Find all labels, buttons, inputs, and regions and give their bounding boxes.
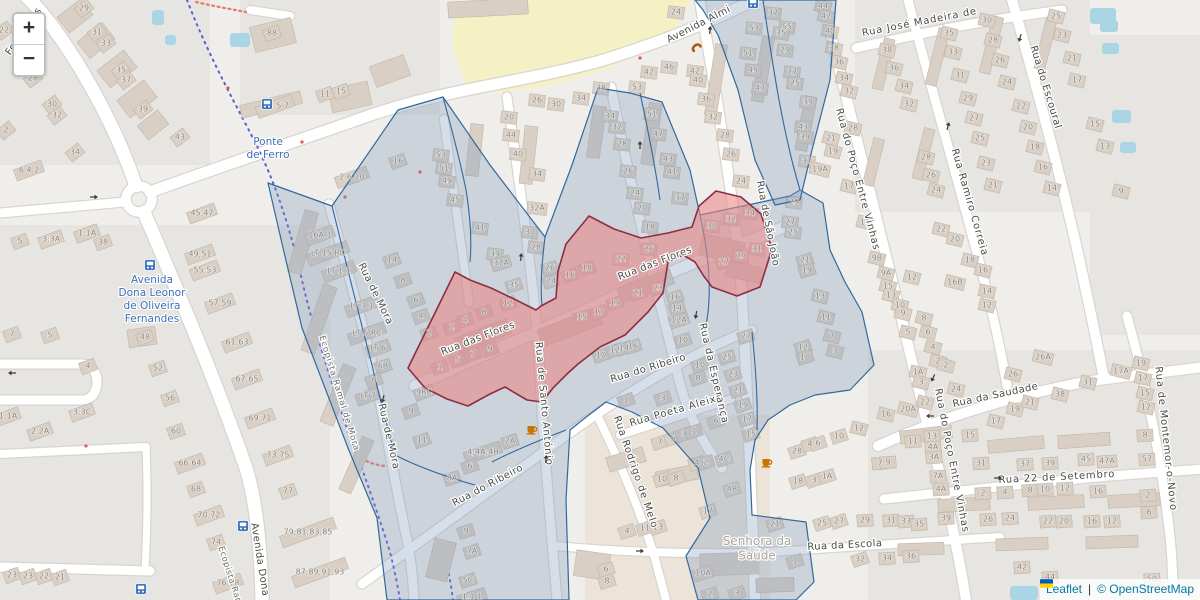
house-number: 15 — [336, 87, 346, 96]
place-label: Ponte — [253, 136, 283, 148]
house-number: 4C — [719, 455, 730, 464]
house-number: 11 — [821, 313, 831, 322]
house-number: 41 — [667, 168, 677, 177]
house-number: 38 — [98, 238, 108, 247]
house-number: 21 — [800, 256, 810, 265]
house-number: 37 — [1020, 460, 1030, 469]
house-number: 1;1 1 — [462, 593, 483, 600]
house-number: 34 — [605, 112, 615, 121]
house-number: 20 — [950, 235, 960, 244]
house-number: 18 — [582, 264, 592, 273]
house-number: 3 — [660, 394, 665, 403]
house-number: 39 — [138, 105, 148, 114]
house-number: 33 — [948, 48, 958, 57]
house-number: 32A — [529, 204, 545, 213]
building — [996, 537, 1048, 551]
house-number: 21 — [770, 520, 780, 529]
house-number: 6 — [467, 462, 472, 471]
house-number: 24 — [546, 277, 556, 286]
house-number: 1;1A — [78, 229, 97, 238]
house-number: 8 — [695, 374, 700, 383]
house-number: 2A — [505, 437, 516, 446]
house-number: 1A — [822, 472, 833, 481]
house-number: 88 — [267, 29, 277, 38]
house-number: 9 — [408, 407, 413, 416]
house-number: 37 — [675, 194, 685, 203]
house-number: 13 — [815, 292, 825, 301]
house-number: 12 — [1141, 403, 1151, 412]
house-number: 40 — [513, 150, 523, 159]
house-number: 38 — [1055, 390, 1065, 399]
house-number: 18 — [965, 256, 975, 265]
house-number: 16 — [1038, 163, 1048, 172]
house-number: 2 — [1145, 491, 1150, 500]
house-number: 39 — [803, 98, 813, 107]
house-number: 74 — [211, 538, 221, 547]
house-number: 34 — [745, 209, 755, 218]
house-number: 53 — [436, 151, 446, 160]
house-number: 48 — [140, 333, 150, 342]
house-number: 39 — [490, 250, 500, 259]
house-number: 23 — [981, 159, 991, 168]
house-number: 7A — [467, 547, 478, 556]
house-number: 25 — [790, 79, 800, 88]
house-number: 45 — [450, 196, 460, 205]
house-number: 1 — [792, 557, 797, 566]
house-number: 19 — [802, 266, 812, 275]
attribution-bar: Leaflet | © OpenStreetMap — [1040, 579, 1200, 600]
house-number: 35 — [776, 29, 786, 38]
house-number: 9B — [872, 254, 883, 263]
house-number: 3;3A — [42, 235, 61, 244]
house-number: 28 — [720, 131, 730, 140]
house-number: 35 — [944, 29, 954, 38]
house-number: 37 — [802, 157, 812, 166]
house-number: 2 6 10 — [339, 173, 364, 182]
house-number: 34 — [839, 74, 849, 83]
house-number: 2;2A — [31, 427, 50, 436]
house-number: 39 — [800, 133, 810, 142]
house-number: 45 — [1081, 455, 1091, 464]
house-number: 19 — [738, 401, 748, 410]
house-number: 31 — [1083, 378, 1093, 387]
house-number: 13 — [886, 291, 896, 300]
place-label: de Oliveira — [124, 300, 181, 312]
house-number: 4 — [1002, 488, 1007, 497]
house-number: 4A — [936, 485, 947, 494]
swimming-pool — [1010, 586, 1038, 600]
house-number: 6 — [371, 376, 376, 385]
house-number: 4 — [694, 459, 699, 468]
house-number: 25 — [975, 134, 985, 143]
house-number: 16 — [393, 157, 403, 166]
house-number: 21 — [1067, 54, 1077, 63]
house-number: 26 — [995, 56, 1005, 65]
house-number: 9 — [885, 458, 890, 467]
house-number: 11 — [320, 90, 330, 99]
house-number: 40 — [825, 27, 835, 36]
house-number: 32 — [904, 100, 914, 109]
house-number: 47A — [1099, 457, 1115, 466]
house-number: 6 — [413, 296, 418, 305]
house-number: 5C — [463, 576, 474, 585]
house-number: 12 — [1060, 484, 1070, 493]
house-number: 9A — [881, 269, 892, 278]
house-number: 3;3C — [73, 408, 92, 417]
house-number: 7 — [829, 332, 834, 341]
house-number: 16B — [947, 278, 963, 287]
house-number: 24 — [736, 177, 746, 186]
house-number: 19 — [1010, 405, 1020, 414]
house-number: 3 — [918, 378, 923, 387]
house-number: 35 — [509, 281, 519, 290]
house-number: 27 — [719, 258, 729, 267]
house-number: 32 — [726, 215, 736, 224]
house-number: 69;71 — [248, 414, 271, 423]
house-number: 29 — [963, 94, 973, 103]
house-number: 29 — [860, 516, 870, 525]
house-number: 17A — [1113, 367, 1129, 376]
house-number: 3 — [811, 476, 816, 485]
house-number: 10 — [678, 336, 688, 345]
house-number: 39 — [941, 514, 951, 523]
ukraine-flag-icon — [1040, 579, 1053, 588]
house-number: 27 — [787, 68, 797, 77]
house-number: 26 — [532, 96, 542, 105]
house-number: 42 — [644, 68, 654, 77]
house-number: 22 — [39, 572, 49, 581]
house-number: 66;64 — [178, 459, 201, 468]
house-number: 22 — [936, 225, 946, 234]
house-number: 1 — [691, 427, 696, 436]
house-number: 15 — [883, 282, 893, 291]
house-number: 19 — [828, 147, 838, 156]
house-number: 26 — [726, 150, 736, 159]
house-number: 6 — [925, 328, 930, 337]
swimming-pool — [1112, 110, 1131, 123]
house-number: 34 — [882, 554, 892, 563]
house-number: 15 — [1090, 120, 1100, 129]
house-number: 49;51 — [188, 250, 211, 259]
house-number: 7 — [9, 330, 14, 339]
house-number: 67;65 — [235, 375, 258, 384]
house-number: 24 — [1002, 78, 1012, 87]
house-number: 8 — [1142, 431, 1147, 440]
map-marker-dot — [84, 444, 87, 447]
house-number: 14 — [982, 287, 992, 296]
house-number: 53 — [632, 83, 642, 92]
house-number: 4A — [928, 443, 939, 452]
swimming-pool — [152, 10, 164, 25]
house-number: 20 — [637, 204, 647, 213]
house-number: 15 — [1140, 389, 1150, 398]
house-number: LT 1 1 — [327, 267, 351, 276]
house-number: 60 — [171, 427, 181, 436]
house-number: 57 — [1142, 455, 1152, 464]
house-number: 39 — [1045, 459, 1055, 468]
house-number: 68 — [191, 485, 201, 494]
house-number: 44 — [506, 131, 516, 140]
house-number: 42 — [690, 67, 700, 76]
house-number: 29 — [736, 252, 746, 261]
house-number: 4;4A;4B — [467, 448, 499, 457]
house-number: 12A — [671, 316, 687, 325]
house-number: 3 — [681, 430, 686, 439]
house-number: 22 — [0, 26, 9, 35]
house-number: 8 — [400, 276, 405, 285]
house-number: 24 — [1005, 514, 1015, 523]
place-label: Senhora da — [723, 534, 792, 548]
bus-stop-icon — [238, 521, 249, 532]
house-number: 28 — [921, 153, 931, 162]
house-number: 57;59 — [208, 299, 231, 308]
house-number: 47 — [755, 84, 765, 93]
house-number: 9RC — [416, 388, 432, 397]
house-number: 18 — [645, 223, 655, 232]
place-label: Fernandes — [125, 313, 179, 325]
house-number: 16 — [978, 266, 988, 275]
house-number: 24 — [951, 385, 961, 394]
house-number: 1 — [623, 396, 628, 405]
place-label: Dona Leonor — [119, 287, 187, 299]
house-number: 52 — [153, 364, 163, 373]
house-number: 5 — [455, 356, 460, 365]
house-number: 36 — [701, 95, 711, 104]
map-canvas[interactable]: 2229313335373943881 3 5 71115283032346 4… — [0, 0, 1200, 600]
house-number: 51 — [439, 164, 449, 173]
house-number: 26 — [644, 245, 654, 254]
house-number: 2 — [449, 323, 454, 332]
house-number: 42 — [821, 12, 831, 21]
house-number: 26 — [926, 171, 936, 180]
house-number: LT 15 RC — [311, 249, 346, 258]
house-number: 2 — [3, 126, 8, 135]
house-number: 26 — [1008, 370, 1018, 379]
house-number: 3 — [734, 589, 739, 598]
house-number: 35 — [116, 66, 126, 75]
house-number: 2 — [943, 361, 948, 370]
house-number: 22 — [616, 255, 626, 264]
house-number: 7A — [933, 472, 944, 481]
house-number: 23 — [23, 572, 33, 581]
house-number: 1 — [437, 363, 442, 372]
house-number: 2 — [426, 329, 431, 338]
house-number: LT 3 1 — [350, 302, 374, 311]
zoom-out-button[interactable]: − — [14, 45, 44, 75]
house-number: 38 — [882, 46, 892, 55]
house-number: 32 — [855, 555, 865, 564]
house-number: 32 — [708, 113, 718, 122]
house-number: 16 — [628, 342, 638, 351]
house-number: 20 — [1059, 517, 1069, 526]
house-number: 17 — [1138, 374, 1148, 383]
house-number: 10A — [695, 569, 711, 578]
house-number: 4 — [85, 362, 90, 371]
house-number: 15 — [577, 313, 587, 322]
house-number: 79;81;83;85 — [284, 528, 333, 537]
house-number: 51 — [647, 110, 657, 119]
house-number: 12 — [854, 424, 864, 433]
bus-stop-icon — [136, 584, 147, 595]
house-number: 21 — [733, 386, 743, 395]
house-number: 21 — [988, 181, 998, 190]
house-number: 28 — [617, 140, 627, 149]
house-number: 27 — [741, 332, 751, 341]
place-label: de Ferro — [246, 149, 289, 161]
house-number: 77 — [283, 487, 293, 496]
house-number: 6 — [815, 439, 820, 448]
house-number: 2 — [935, 357, 940, 366]
house-number: 43 — [798, 123, 808, 132]
swimming-pool — [230, 33, 250, 47]
house-number: 24 — [671, 8, 681, 17]
house-number: 44 — [818, 2, 828, 11]
house-number: 3 — [832, 347, 837, 356]
map-marker-dot — [300, 140, 303, 143]
house-number: 30 — [707, 222, 717, 231]
house-number: 32 — [612, 123, 622, 132]
house-number: 21 — [55, 573, 65, 582]
house-number: 31 — [886, 516, 896, 525]
bus-stop-icon — [262, 99, 273, 110]
house-number: 10 — [800, 353, 810, 362]
house-number: 10 — [695, 361, 705, 370]
house-number: 19A — [812, 165, 828, 174]
house-number: 4 — [462, 316, 467, 325]
house-number: 33 — [901, 517, 911, 526]
house-number: 34 — [532, 170, 542, 179]
swimming-pool — [1100, 20, 1118, 32]
bus-stop-icon — [145, 260, 156, 271]
house-number: 27 — [834, 517, 844, 526]
house-number: LT 6 — [370, 344, 386, 353]
house-number: 22 — [920, 398, 930, 407]
swimming-pool — [1102, 43, 1119, 54]
house-number: 9 — [463, 527, 468, 536]
house-number: 30 — [551, 100, 561, 109]
house-number: 36 — [834, 58, 844, 67]
house-number: 12 — [798, 343, 808, 352]
house-number: 17 — [1072, 76, 1082, 85]
house-number: 13 — [1100, 142, 1110, 151]
house-number: 8 — [921, 314, 926, 323]
house-number: 15 — [746, 430, 756, 439]
house-number: 23 — [1057, 31, 1067, 40]
house-number: 38 — [596, 84, 606, 93]
house-number: 14 — [672, 304, 682, 313]
house-number: 3A — [929, 453, 940, 462]
house-number: 18 — [1030, 143, 1040, 152]
house-number: 43 — [175, 133, 185, 142]
house-number: 36 — [906, 552, 916, 561]
house-number: 49 — [748, 66, 758, 75]
house-number: 7 — [470, 350, 475, 359]
house-number: 18 — [793, 477, 803, 486]
house-number: 23 — [728, 370, 738, 379]
house-number: 6 — [603, 565, 608, 574]
house-number: 26A — [1035, 353, 1051, 362]
house-number: 19 — [610, 299, 620, 308]
house-number: 10 — [834, 432, 844, 441]
house-number: 73;75 — [266, 451, 289, 460]
house-number: 8 — [481, 308, 486, 317]
map-marker-dot — [226, 86, 229, 89]
house-number: 35 — [914, 520, 924, 529]
house-number: 12 — [982, 301, 992, 310]
house-number: 4B — [727, 485, 738, 494]
house-number: 17 — [594, 308, 604, 317]
house-number: 12 — [503, 299, 513, 308]
house-number: 27 — [969, 114, 979, 123]
house-number: 36 — [889, 64, 899, 73]
house-number: 29 — [789, 198, 799, 207]
house-number: 6 — [1146, 508, 1151, 517]
house-number: 20 — [1023, 123, 1033, 132]
map-marker-dot — [638, 56, 641, 59]
house-number: 37 — [121, 76, 131, 85]
house-number: 9 — [1118, 187, 1123, 196]
house-number: 8 — [673, 474, 678, 483]
house-number: 2 — [980, 489, 985, 498]
house-number: 61;63 — [225, 338, 248, 347]
house-number: 4 — [930, 343, 935, 352]
house-number: 15 — [965, 431, 975, 440]
house-number: LT 7 — [360, 392, 376, 401]
house-number: 46 — [664, 63, 674, 72]
house-number: 6B — [378, 362, 389, 371]
house-number: 10 — [1040, 485, 1050, 494]
house-number: 17 — [703, 507, 713, 516]
house-number: 16 — [565, 271, 575, 280]
house-number: 10 — [657, 475, 667, 484]
house-number: 25 — [817, 519, 827, 528]
house-number: 45;47 — [190, 209, 213, 218]
house-number: 34 — [576, 94, 586, 103]
building — [1086, 535, 1138, 549]
house-number: 16 — [670, 293, 680, 302]
house-number: 14 — [1047, 184, 1057, 193]
house-number: 4 — [624, 527, 629, 536]
road — [0, 567, 150, 571]
house-number: 31 — [92, 28, 102, 37]
house-number: 4 — [418, 312, 423, 321]
house-number: 32 — [52, 111, 62, 120]
house-number: 17 — [742, 415, 752, 424]
house-number: 31 — [752, 245, 762, 254]
house-number: 24 — [630, 189, 640, 198]
house-number: 6 4 2 — [19, 166, 39, 175]
zoom-in-button[interactable]: + — [14, 14, 44, 45]
house-number: 32 — [844, 87, 854, 96]
map-render-surface: 2229313335373943881 3 5 71115283032346 4… — [0, 0, 1200, 600]
house-number: 5 — [47, 331, 52, 340]
house-number: 37A — [493, 259, 509, 268]
house-number: 41 — [475, 224, 485, 233]
house-number: 29 — [79, 4, 89, 13]
house-number: 87;89;91;93 — [296, 568, 345, 577]
openstreetmap-link[interactable]: © OpenStreetMap — [1097, 581, 1194, 598]
house-number: 19 — [1136, 359, 1146, 368]
house-number: 6 — [713, 417, 718, 426]
house-number: 17 — [991, 417, 1001, 426]
house-number: 30 — [525, 228, 535, 237]
house-number: 42 — [1017, 563, 1027, 572]
house-number: 49 — [442, 177, 452, 186]
house-number: 9 — [487, 345, 492, 354]
swimming-pool — [1120, 142, 1136, 153]
house-number: 16A 1 — [308, 231, 331, 240]
house-number: 4 — [807, 440, 812, 449]
